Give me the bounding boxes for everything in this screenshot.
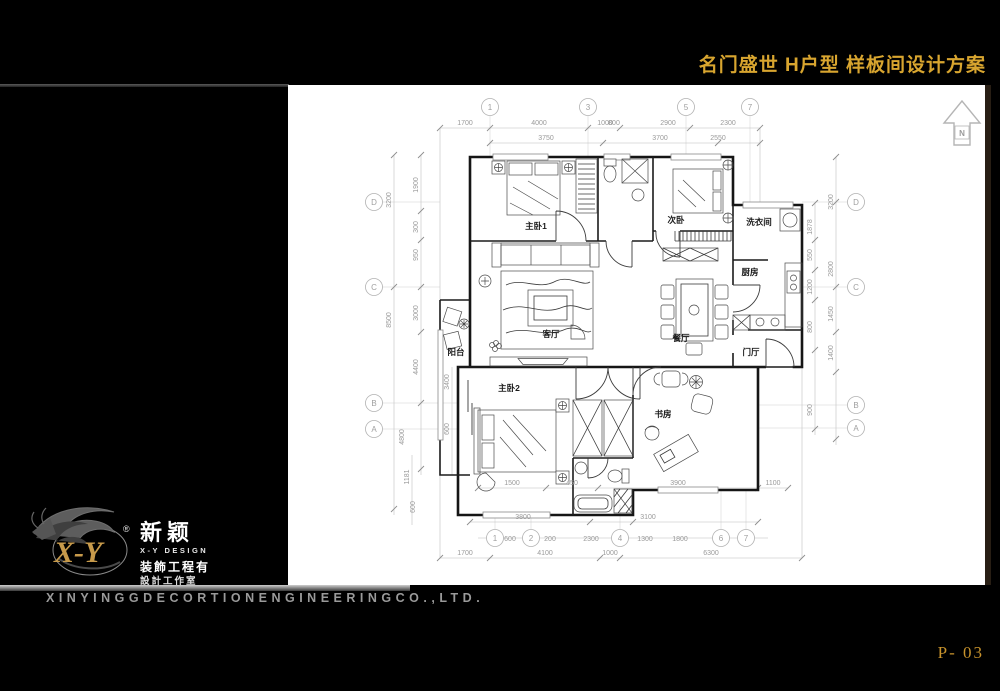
dim-label: 1400 (828, 345, 835, 361)
room-label: 主卧2 (498, 383, 520, 393)
logo-registered-mark: ® (123, 524, 130, 534)
doors (468, 211, 794, 478)
dim-label: 300 (413, 221, 420, 233)
grid-bubble-label: 2 (529, 534, 534, 543)
dim-label: 1500 (504, 480, 520, 487)
dim-label: 2300 (583, 536, 599, 543)
windows (438, 154, 793, 518)
dim-label: 450 (566, 480, 578, 487)
north-arrow-icon: N (944, 101, 980, 145)
dim-label: 1000 (602, 550, 618, 557)
grid-bubble-label: D (853, 198, 859, 207)
logo-name-cn: 新颖 (140, 522, 210, 544)
grid-bubble-label: B (371, 399, 376, 408)
company-logo: X-Y ® 新颖 X-Y DESIGN 装飾工程有 設計工作室 (28, 500, 278, 588)
canvas-edge-shadow (985, 85, 991, 585)
dim-label: 3750 (538, 135, 554, 142)
grid-bubble-label: 5 (684, 103, 689, 112)
top-divider-line (0, 84, 289, 87)
dim-label: 900 (807, 404, 814, 416)
dim-label: 2900 (660, 120, 676, 127)
room-label: 次卧 (667, 215, 685, 225)
dim-label: 4800 (399, 429, 406, 445)
grid-bubble-label: A (371, 425, 377, 434)
dim-label: 8500 (386, 312, 393, 328)
presentation-slide: 名门盛世 H户型 样板间设计方案 (0, 0, 1000, 691)
dim-label: 600 (504, 536, 516, 543)
grid-bubble-label: 1 (493, 534, 498, 543)
dim-label: 2550 (710, 135, 726, 142)
dim-label: 950 (413, 249, 420, 261)
logo-name-en: X-Y DESIGN (140, 547, 210, 555)
dim-label: 3200 (828, 194, 835, 210)
grid-bubble-label: A (853, 424, 859, 433)
dim-label: 800 (608, 120, 620, 127)
grid-bubble-label: 7 (748, 103, 753, 112)
dim-label: 4100 (537, 550, 553, 557)
dragon-logo-art: X-Y ® (28, 500, 148, 588)
dim-label: 3900 (670, 480, 686, 487)
dim-label: 3000 (413, 305, 420, 321)
grid-bubble-label: C (371, 283, 377, 292)
logo-line1: 装飾工程有 (140, 561, 210, 573)
dim-label: 1100 (765, 480, 780, 487)
room-label: 门厅 (742, 347, 760, 357)
dim-label: 3800 (515, 514, 531, 521)
dim-label: 1800 (672, 536, 688, 543)
room-label: 客厅 (541, 329, 560, 339)
floor-plan-drawing: N 主卧1次卧洗衣间厨房客厅餐厅门厅阳台主卧2书房170040001000800… (288, 85, 985, 585)
dim-label: 4000 (531, 120, 547, 127)
dim-label: 1900 (413, 177, 420, 193)
dim-label: 2800 (828, 261, 835, 277)
grid-bubble-label: B (853, 401, 858, 410)
grid-bubble-label: D (371, 198, 377, 207)
grid-bubble-label: 7 (744, 534, 749, 543)
plan-canvas: N 主卧1次卧洗衣间厨房客厅餐厅门厅阳台主卧2书房170040001000800… (288, 85, 985, 585)
grid-bubble-label: 4 (618, 534, 623, 543)
room-label: 书房 (654, 409, 671, 419)
grid-bubble-label: 1 (488, 103, 493, 112)
grid-bubble-label: C (853, 283, 859, 292)
page-number: P- 03 (938, 643, 984, 663)
room-label: 厨房 (741, 267, 758, 277)
room-label: 洗衣间 (746, 217, 772, 227)
dim-label: 1700 (457, 550, 473, 557)
dim-label: 2300 (720, 120, 736, 127)
dim-label: 1700 (457, 120, 473, 127)
dim-label: 6300 (703, 550, 719, 557)
furniture (443, 159, 802, 513)
dim-label: 1200 (807, 279, 814, 295)
dim-label: 3200 (386, 192, 393, 208)
dim-label: 1181 (404, 469, 411, 484)
room-label: 主卧1 (525, 221, 547, 231)
dim-label: 1450 (828, 306, 835, 322)
dim-label: 200 (544, 536, 556, 543)
dim-label: 3100 (640, 514, 656, 521)
slide-title: 名门盛世 H户型 样板间设计方案 (699, 50, 986, 77)
dim-label: 1878 (807, 219, 814, 235)
dim-label: 4400 (413, 359, 420, 375)
dim-label: 600 (410, 501, 417, 513)
dim-label: 800 (807, 321, 814, 333)
dim-label: 3400 (444, 374, 451, 390)
dim-label: 600 (444, 423, 451, 435)
logo-xy-text: X-Y (53, 536, 105, 569)
grid-bubble-label: 3 (586, 103, 591, 112)
svg-text:N: N (959, 129, 965, 138)
dim-label: 3700 (652, 135, 668, 142)
dim-label: 1300 (637, 536, 653, 543)
interior-walls (458, 157, 802, 515)
company-name-text: XINYINGGDECORTIONENGINEERINGCO.,LTD. (46, 591, 484, 605)
grid-bubble-label: 6 (719, 534, 724, 543)
room-label: 餐厅 (671, 333, 690, 343)
room-label: 阳台 (447, 347, 465, 357)
dim-label: 550 (807, 249, 814, 261)
